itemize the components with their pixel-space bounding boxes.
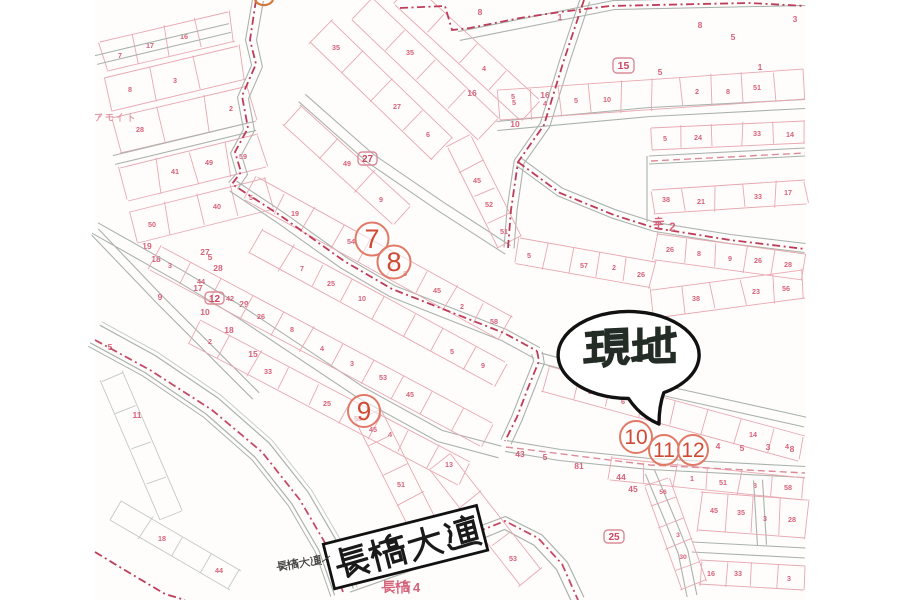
svg-text:45: 45 [433, 286, 441, 295]
svg-text:28: 28 [788, 515, 796, 524]
svg-text:11: 11 [133, 410, 142, 420]
svg-text:35: 35 [737, 508, 745, 517]
svg-text:3: 3 [676, 532, 680, 539]
svg-text:9: 9 [481, 361, 485, 370]
svg-text:56: 56 [659, 489, 667, 496]
svg-text:2: 2 [695, 87, 699, 96]
svg-text:54: 54 [347, 237, 355, 246]
svg-text:16: 16 [707, 569, 715, 578]
svg-text:23: 23 [752, 287, 760, 296]
svg-text:8: 8 [790, 444, 795, 454]
svg-text:56: 56 [782, 284, 790, 293]
svg-text:3: 3 [766, 442, 771, 452]
svg-text:51: 51 [753, 83, 761, 92]
svg-text:45: 45 [710, 506, 718, 515]
svg-text:12: 12 [209, 294, 221, 305]
svg-text:81: 81 [574, 461, 584, 471]
svg-text:44: 44 [197, 277, 205, 286]
svg-text:7: 7 [300, 264, 304, 273]
svg-text:27: 27 [393, 102, 401, 111]
svg-text:9: 9 [357, 396, 371, 426]
svg-text:57: 57 [580, 261, 588, 270]
svg-text:4: 4 [716, 441, 721, 451]
svg-text:10: 10 [510, 119, 520, 129]
svg-text:33: 33 [734, 569, 742, 578]
svg-text:38: 38 [692, 294, 700, 303]
svg-text:33: 33 [754, 192, 762, 201]
svg-text:8: 8 [478, 7, 483, 17]
svg-text:5: 5 [512, 98, 516, 107]
svg-text:15: 15 [618, 60, 630, 72]
svg-text:1: 1 [558, 12, 563, 22]
svg-text:35: 35 [406, 48, 414, 57]
svg-text:45: 45 [473, 176, 481, 185]
svg-text:26: 26 [637, 270, 645, 279]
svg-text:50: 50 [148, 220, 156, 229]
svg-text:53: 53 [509, 554, 517, 563]
svg-text:3: 3 [168, 261, 172, 270]
svg-text:14: 14 [786, 130, 794, 139]
svg-text:51: 51 [397, 480, 405, 489]
svg-text:5: 5 [740, 443, 745, 453]
svg-text:5: 5 [574, 96, 578, 105]
svg-text:4: 4 [482, 64, 486, 73]
svg-text:33: 33 [753, 129, 761, 138]
svg-text:58: 58 [490, 317, 498, 326]
svg-text:15: 15 [248, 349, 258, 359]
svg-text:43: 43 [515, 449, 525, 459]
svg-text:45: 45 [406, 390, 414, 399]
svg-text:19: 19 [291, 209, 299, 218]
svg-text:27: 27 [362, 154, 374, 165]
svg-text:49: 49 [343, 159, 351, 168]
svg-text:24: 24 [694, 133, 702, 142]
svg-text:2: 2 [460, 302, 464, 311]
svg-text:3: 3 [793, 14, 798, 24]
svg-text:35: 35 [332, 43, 340, 52]
svg-text:30: 30 [679, 554, 687, 561]
svg-text:10: 10 [358, 294, 366, 303]
svg-text:2: 2 [669, 220, 676, 234]
svg-text:4: 4 [320, 344, 324, 353]
svg-text:3: 3 [763, 514, 767, 523]
svg-text:5: 5 [527, 251, 531, 260]
svg-text:2: 2 [612, 263, 616, 272]
svg-text:42: 42 [226, 294, 234, 303]
svg-text:10: 10 [200, 307, 210, 317]
svg-text:49: 49 [205, 158, 213, 167]
svg-text:28: 28 [136, 125, 144, 134]
svg-text:1: 1 [758, 62, 763, 72]
svg-text:5: 5 [731, 32, 736, 42]
svg-text:16: 16 [540, 90, 550, 100]
svg-text:3: 3 [787, 574, 791, 583]
svg-text:17: 17 [784, 188, 792, 197]
svg-text:9: 9 [728, 254, 732, 263]
svg-text:52: 52 [485, 200, 493, 209]
svg-text:5: 5 [208, 252, 213, 262]
svg-text:14: 14 [749, 430, 757, 439]
svg-text:10: 10 [624, 426, 647, 449]
svg-text:25: 25 [327, 279, 335, 288]
svg-text:53: 53 [379, 373, 387, 382]
svg-text:8: 8 [726, 87, 730, 96]
svg-text:2: 2 [208, 337, 212, 346]
svg-text:5: 5 [249, 193, 253, 202]
svg-text:8: 8 [128, 85, 132, 94]
svg-text:9: 9 [379, 195, 383, 204]
svg-text:5: 5 [450, 347, 454, 356]
svg-text:58: 58 [784, 483, 792, 492]
svg-text:26: 26 [666, 245, 674, 254]
svg-text:51: 51 [500, 227, 508, 236]
svg-text:8: 8 [697, 249, 701, 258]
svg-text:16: 16 [467, 88, 477, 98]
svg-text:33: 33 [264, 367, 272, 376]
svg-text:8: 8 [290, 325, 294, 334]
svg-text:6: 6 [426, 130, 430, 139]
svg-text:4: 4 [413, 580, 421, 595]
svg-text:21: 21 [697, 197, 705, 206]
svg-text:8: 8 [386, 247, 401, 277]
svg-text:13: 13 [445, 460, 453, 469]
svg-text:5: 5 [663, 134, 667, 143]
svg-text:4: 4 [785, 442, 789, 451]
svg-text:28: 28 [213, 263, 223, 273]
svg-text:44: 44 [215, 566, 223, 575]
svg-text:2: 2 [229, 104, 233, 113]
svg-text:4: 4 [543, 99, 547, 108]
svg-text:5: 5 [658, 67, 663, 77]
svg-text:25: 25 [323, 399, 331, 408]
svg-text:19: 19 [142, 241, 152, 251]
svg-text:8: 8 [698, 20, 703, 30]
svg-text:10: 10 [603, 95, 611, 104]
svg-text:5: 5 [543, 452, 548, 462]
svg-text:7: 7 [364, 224, 379, 254]
svg-text:45: 45 [628, 484, 638, 494]
svg-text:9: 9 [158, 292, 163, 302]
svg-text:41: 41 [171, 167, 179, 176]
svg-text:3: 3 [350, 359, 354, 368]
svg-text:12: 12 [681, 439, 704, 462]
svg-text:18: 18 [158, 534, 166, 543]
svg-text:26: 26 [257, 312, 265, 321]
svg-text:25: 25 [608, 532, 620, 543]
svg-text:3: 3 [173, 76, 177, 85]
svg-text:40: 40 [213, 202, 221, 211]
svg-text:1: 1 [690, 474, 694, 483]
svg-text:26: 26 [754, 256, 762, 265]
svg-text:5: 5 [108, 342, 113, 352]
svg-text:28: 28 [784, 260, 792, 269]
svg-text:51: 51 [719, 478, 727, 487]
svg-text:38: 38 [662, 195, 670, 204]
svg-text:11: 11 [653, 439, 675, 462]
